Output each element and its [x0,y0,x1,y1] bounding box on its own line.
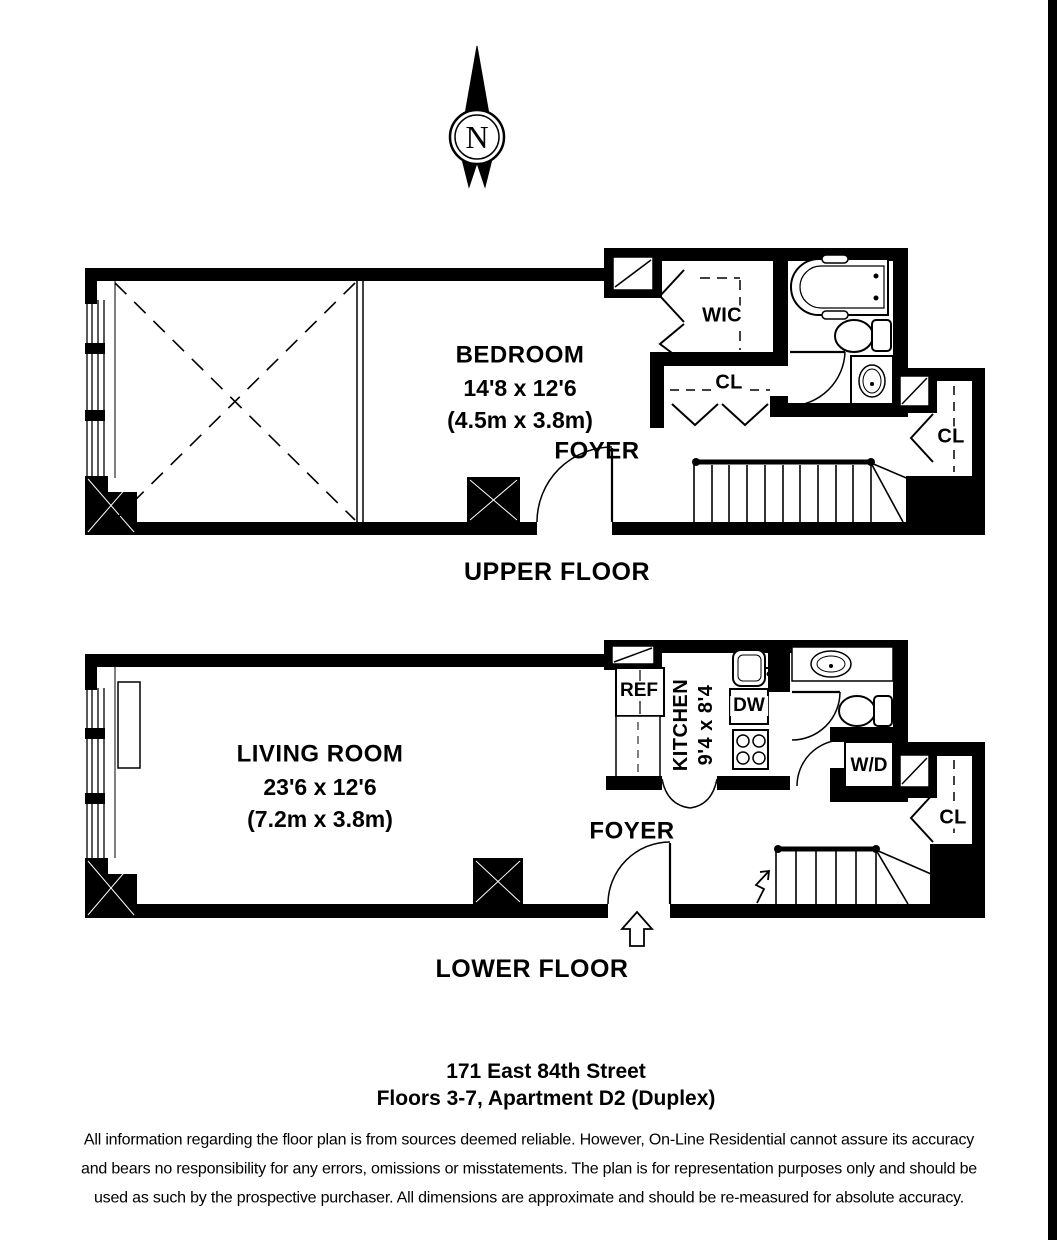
kitchen-name: KITCHEN [669,679,694,771]
shaft-icon [604,248,662,298]
window-wall [87,667,115,858]
disclaimer-line2: and bears no responsibility for any erro… [81,1162,977,1179]
page-edge-line [1048,0,1057,1240]
floor-plan-drawing [0,0,1058,1240]
disclaimer-line1: All information regarding the floor plan… [84,1133,974,1150]
bath-sink-icon [792,647,893,681]
bedroom-label: BEDROOM [456,342,585,367]
radiator [118,682,140,768]
living-room-label: LIVING ROOM [237,741,404,766]
washer-dryer-label: W/D [848,756,891,776]
kitchen-dimensions: 9'4 x 8'4 [694,679,719,771]
stair-direction-arrow [756,871,769,903]
pillar [85,476,137,535]
bedroom-dimensions-metric: (4.5m x 3.8m) [447,408,593,432]
address-line1: 171 East 84th Street [446,1061,646,1083]
open-area [115,281,363,522]
stairs-lower [756,845,931,904]
upper-closet-label: CL [712,373,745,394]
living-room-dimensions: 23'6 x 12'6 [263,775,376,799]
wic-label: WIC [699,306,745,327]
toilet-icon [835,320,891,352]
upper-right-closet-label: CL [934,427,967,448]
sink-icon [851,356,893,404]
lower-right-closet-label: CL [936,808,969,829]
kitchen-label: KITCHEN 9'4 x 8'4 [669,679,719,771]
dishwasher-label: DW [730,696,768,716]
window-wall [87,281,115,478]
door-bath [790,352,845,406]
lower-foyer-label: FOYER [589,818,674,843]
closet-lower-right [893,742,985,918]
kitchen-sink-icon [733,650,772,686]
column [473,858,523,905]
bathtub-icon [791,255,888,319]
toilet-icon [839,696,892,726]
stairs-upper [692,458,930,522]
pillar [85,858,137,918]
disclaimer-line3: used as such by the prospective purchase… [94,1191,964,1208]
living-room-dimensions-metric: (7.2m x 3.8m) [247,807,393,831]
column [467,477,520,523]
shaft-icon [604,640,662,670]
entry-door [608,842,670,904]
compass-north-label: N [465,121,488,155]
stove-icon [733,730,768,769]
upper-floor-caption: UPPER FLOOR [464,559,650,585]
kitchen-doors [662,779,717,808]
address-line2: Floors 3-7, Apartment D2 (Duplex) [377,1088,716,1110]
lower-floor-plan [85,640,985,946]
bedroom-dimensions: 14'8 x 12'6 [463,376,576,400]
entry-arrow-icon [622,912,652,946]
closet-upper-right [893,368,985,535]
refrigerator-label: REF [617,681,661,701]
floor-plan-page: BEDROOM 14'8 x 12'6 (4.5m x 3.8m) FOYER … [0,0,1058,1240]
upper-foyer-label: FOYER [554,438,639,463]
lower-floor-caption: LOWER FLOOR [436,956,629,982]
compass-icon [450,46,504,187]
